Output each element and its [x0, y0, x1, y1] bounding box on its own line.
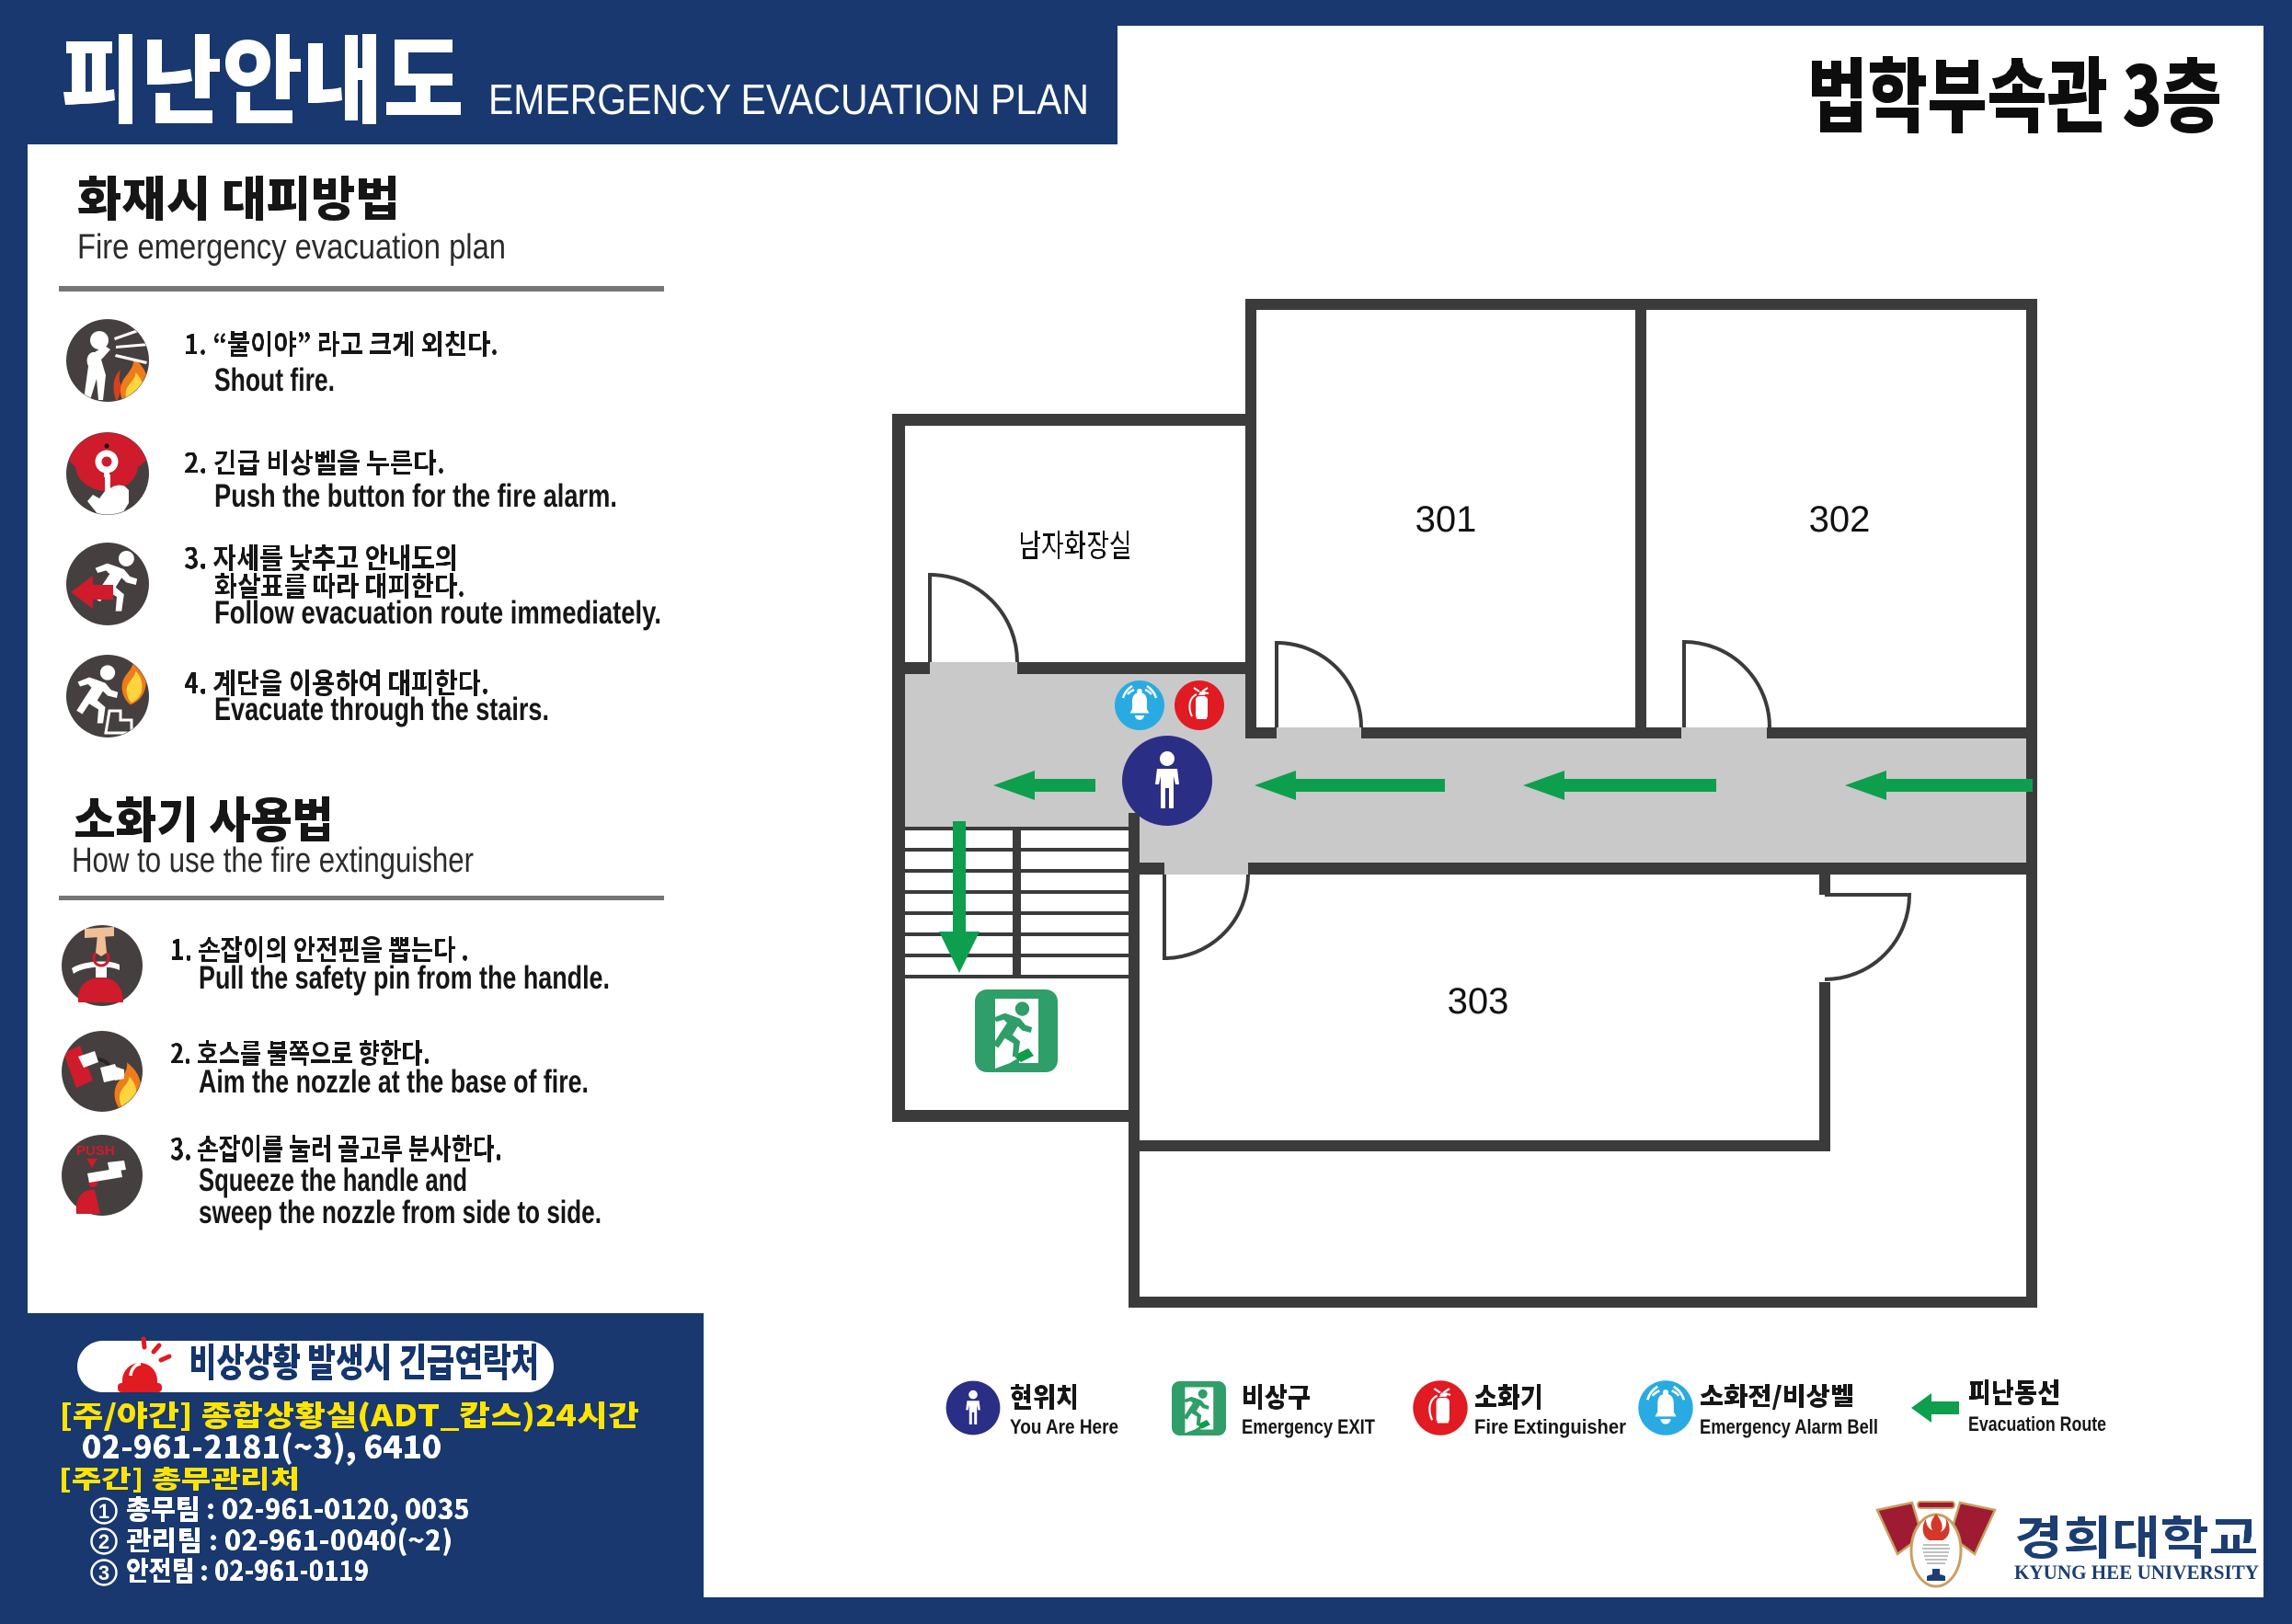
svg-text:EMERGENCY EVACUATION PLAN: EMERGENCY EVACUATION PLAN — [488, 75, 1089, 123]
svg-text:3: 3 — [98, 1561, 109, 1584]
svg-text:KYUNG HEE UNIVERSITY: KYUNG HEE UNIVERSITY — [2014, 1561, 2259, 1584]
svg-text:302: 302 — [1809, 499, 1871, 540]
svg-text:301: 301 — [1415, 499, 1477, 540]
svg-text:Evacuate through the stairs.: Evacuate through the stairs. — [214, 692, 549, 727]
svg-text:Aim the nozzle at the base of: Aim the nozzle at the base of fire. — [199, 1064, 589, 1100]
svg-text:Emergency Alarm Bell: Emergency Alarm Bell — [1700, 1415, 1878, 1438]
svg-text:You Are Here: You Are Here — [1010, 1415, 1118, 1438]
svg-text:2: 2 — [98, 1530, 109, 1553]
svg-text:sweep the nozzle from side to: sweep the nozzle from side to side. — [199, 1195, 602, 1230]
svg-text:303: 303 — [1448, 981, 1509, 1022]
svg-text:Squeeze the handle and: Squeeze the handle and — [199, 1162, 467, 1198]
svg-text:PUSH: PUSH — [76, 1143, 115, 1159]
svg-text:How to use the fire extinguish: How to use the fire extinguisher — [72, 841, 474, 880]
svg-text:Evacuation Route: Evacuation Route — [1968, 1412, 2106, 1435]
svg-text:Push the button for the fire a: Push the button for the fire alarm. — [214, 478, 617, 514]
svg-text:1: 1 — [98, 1500, 109, 1523]
svg-text:Pull the safety pin from the h: Pull the safety pin from the handle. — [199, 960, 610, 996]
svg-text:Shout fire.: Shout fire. — [214, 362, 335, 398]
svg-text:Fire Extinguisher: Fire Extinguisher — [1474, 1415, 1626, 1438]
svg-text:Emergency EXIT: Emergency EXIT — [1242, 1415, 1375, 1438]
svg-text:Follow evacuation route immedi: Follow evacuation route immediately. — [214, 595, 661, 631]
svg-text:Fire emergency evacuation plan: Fire emergency evacuation plan — [77, 228, 506, 267]
